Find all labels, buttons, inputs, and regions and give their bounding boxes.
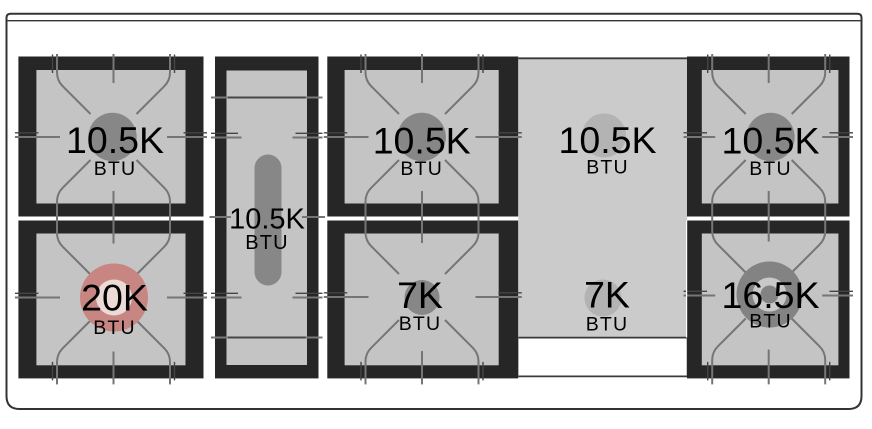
svg-text:10.5K: 10.5K bbox=[559, 119, 657, 161]
svg-text:20K: 20K bbox=[81, 277, 148, 319]
svg-text:BTU: BTU bbox=[399, 313, 442, 335]
svg-text:7K: 7K bbox=[397, 274, 443, 316]
svg-text:BTU: BTU bbox=[586, 157, 629, 179]
svg-text:BTU: BTU bbox=[94, 158, 137, 180]
svg-text:BTU: BTU bbox=[749, 158, 792, 180]
svg-text:10.5K: 10.5K bbox=[722, 120, 820, 162]
svg-text:BTU: BTU bbox=[400, 158, 443, 180]
svg-text:BTU: BTU bbox=[93, 317, 136, 339]
svg-text:7K: 7K bbox=[584, 274, 630, 316]
svg-text:BTU: BTU bbox=[749, 311, 792, 333]
svg-text:10.5K: 10.5K bbox=[229, 204, 305, 236]
svg-text:BTU: BTU bbox=[586, 314, 629, 336]
svg-text:BTU: BTU bbox=[245, 232, 289, 254]
svg-text:10.5K: 10.5K bbox=[373, 120, 471, 162]
svg-text:10.5K: 10.5K bbox=[66, 119, 164, 161]
